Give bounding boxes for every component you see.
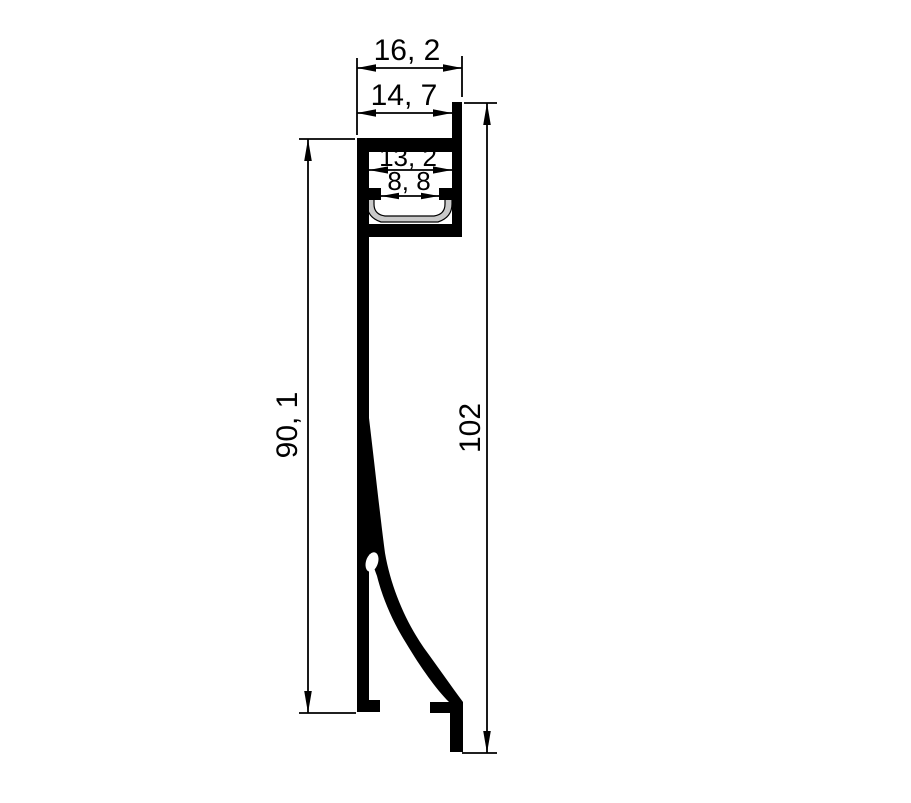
dim-back-height: 90, 1 (271, 139, 356, 713)
arrowhead-top (483, 103, 491, 125)
arrowhead-right (443, 64, 462, 72)
profile-silhouette (357, 102, 463, 752)
arrowhead-top (304, 139, 312, 161)
profile-cross-section-drawing: 16, 2 14, 7 13, 2 8, 8 (0, 0, 911, 803)
diffuser (367, 198, 452, 222)
dim-opening-width: 8, 8 (381, 166, 439, 199)
dimension-text: 102 (454, 403, 487, 453)
curved-support-flange (369, 418, 463, 752)
back-wall (357, 138, 369, 712)
dimension-text: 90, 1 (271, 392, 304, 459)
diffuser-lip-left (369, 188, 381, 200)
dimension-text: 8, 8 (387, 166, 430, 196)
arrowhead-bottom (304, 691, 312, 713)
dim-top-width: 14, 7 (357, 79, 452, 117)
technical-drawing-canvas: 16, 2 14, 7 13, 2 8, 8 (0, 0, 911, 803)
channel-base (357, 224, 462, 237)
diffuser-trough (367, 198, 452, 222)
dimension-text: 14, 7 (371, 79, 438, 112)
right-wall (452, 102, 462, 237)
arrowhead-bottom (483, 731, 491, 753)
back-wall-foot (357, 700, 380, 712)
diffuser-lip-right (439, 188, 452, 200)
dimension-text: 16, 2 (374, 34, 441, 67)
